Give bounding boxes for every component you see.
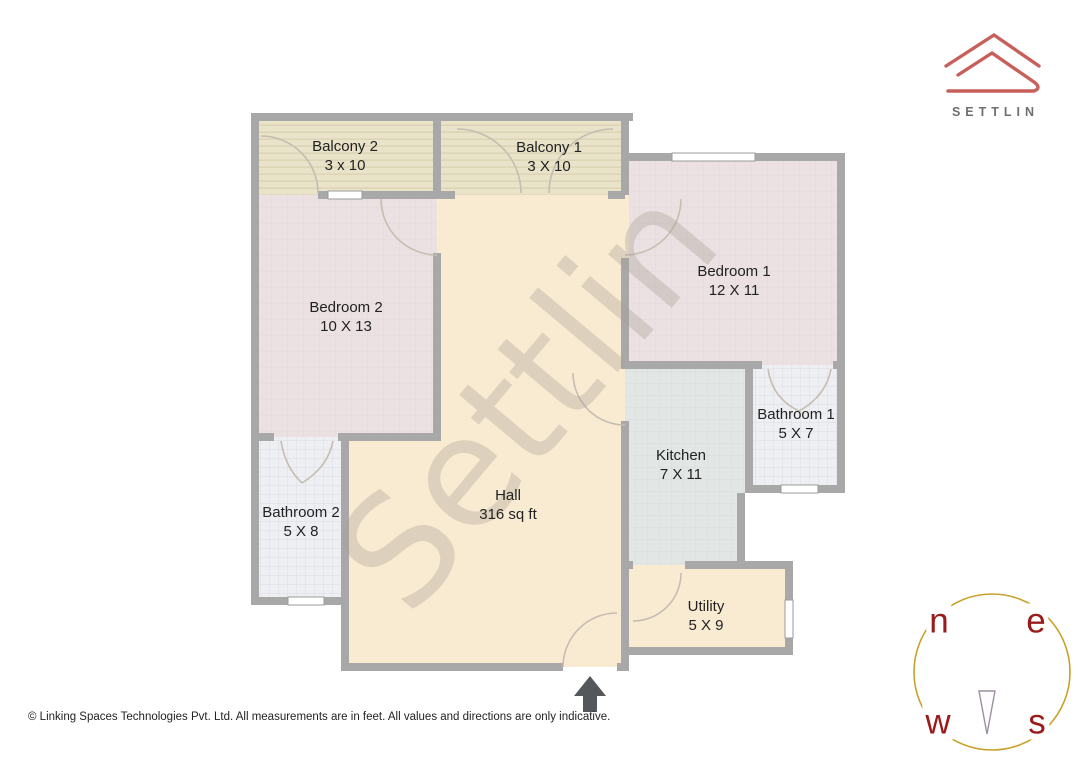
room-label-kitchen: Kitchen 7 X 11 [656,446,706,484]
room-size: 5 X 7 [757,424,835,443]
room-name: Utility [688,597,725,616]
footer-copyright: © Linking Spaces Technologies Pvt. Ltd. … [28,711,610,723]
room-label-balcony-1: Balcony 1 3 X 10 [516,138,582,176]
room-size: 316 sq ft [479,505,537,524]
room-name: Kitchen [656,446,706,465]
room-size: 10 X 13 [309,317,382,336]
room-size: 3 X 10 [516,157,582,176]
room-label-bathroom-2: Bathroom 2 5 X 8 [262,503,340,541]
room-floor-hall-lower [345,437,445,667]
window-utility [785,600,793,638]
window-balcony-2 [328,191,362,199]
room-label-bedroom-2: Bedroom 2 10 X 13 [309,298,382,336]
entrance-arrow-icon [574,676,606,712]
window-bathroom-2 [288,597,324,605]
room-size: 5 X 9 [688,616,725,635]
compass-letter-north: n [926,604,951,639]
room-label-bedroom-1: Bedroom 1 12 X 11 [697,262,770,300]
room-label-bathroom-1: Bathroom 1 5 X 7 [757,405,835,443]
room-name: Bedroom 2 [309,298,382,317]
compass-needle-icon [979,691,995,734]
room-name: Balcony 2 [312,137,378,156]
room-size: 7 X 11 [656,465,706,484]
room-name: Bedroom 1 [697,262,770,281]
floor-plan-page: SETTLIN [0,0,1080,764]
room-size: 5 X 8 [262,522,340,541]
room-name: Balcony 1 [516,138,582,157]
window-bedroom-1 [672,153,755,161]
room-name: Bathroom 1 [757,405,835,424]
compass-letter-west: w [922,705,953,740]
room-name: Hall [479,486,537,505]
room-label-utility: Utility 5 X 9 [688,597,725,635]
compass: n e w s [905,580,1080,760]
room-name: Bathroom 2 [262,503,340,522]
room-size: 12 X 11 [697,281,770,300]
window-bathroom-1 [781,485,818,493]
room-size: 3 x 10 [312,156,378,175]
room-label-hall: Hall 316 sq ft [479,486,537,524]
compass-letter-south: s [1025,705,1049,740]
room-floor-hall-upper [437,195,629,667]
room-label-balcony-2: Balcony 2 3 x 10 [312,137,378,175]
compass-letter-east: e [1023,604,1048,639]
